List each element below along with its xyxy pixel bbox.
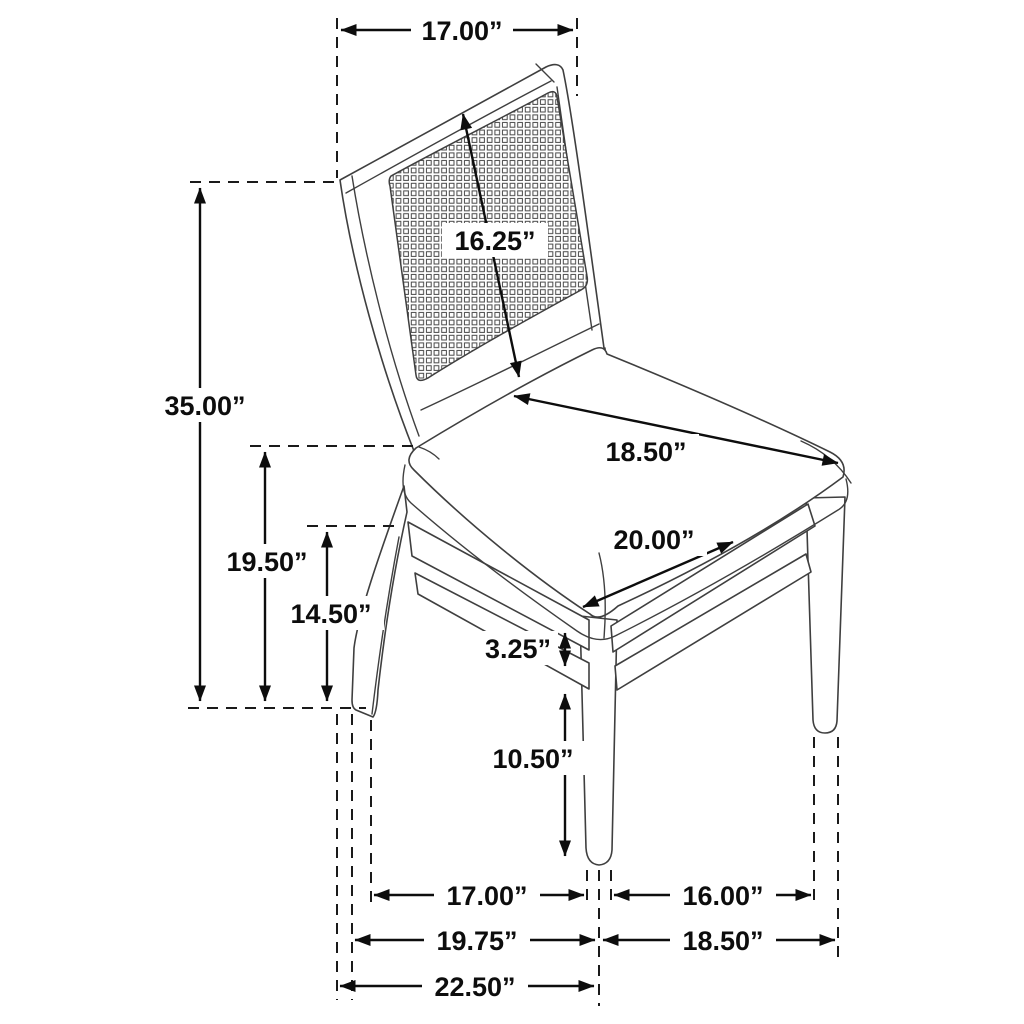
dim-label-overall-height: 35.00” bbox=[152, 388, 258, 422]
dim-label-text: 35.00” bbox=[164, 391, 245, 421]
chair-front-leg bbox=[580, 616, 617, 865]
diagram-svg: 17.00” 35.00” 16.25” 19.50” 14.50” 18.50… bbox=[0, 0, 1024, 1024]
dim-label-back-top-width: 17.00” bbox=[411, 13, 513, 47]
dim-label-back-panel-diagonal: 16.25” bbox=[442, 223, 548, 257]
dim-label-base-inner-width: 16.00” bbox=[670, 878, 776, 912]
dim-label-base-mid-depth: 19.75” bbox=[424, 923, 530, 957]
dim-label-text: 22.50” bbox=[434, 972, 515, 1002]
dim-label-text: 3.25” bbox=[485, 634, 551, 664]
dim-label-text: 19.50” bbox=[226, 547, 307, 577]
dim-label-base-inner-depth: 17.00” bbox=[434, 878, 540, 912]
dim-label-text: 18.50” bbox=[605, 437, 686, 467]
dim-label-text: 16.00” bbox=[682, 881, 763, 911]
dim-label-base-overall-depth: 22.50” bbox=[422, 969, 528, 1003]
dim-label-text: 10.50” bbox=[492, 744, 573, 774]
dim-label-seat-frame-height: 14.50” bbox=[278, 596, 384, 630]
dim-label-leg-lower-height: 10.50” bbox=[480, 741, 586, 775]
dim-label-text: 18.50” bbox=[682, 926, 763, 956]
chair-rear-right-leg bbox=[806, 497, 845, 733]
dim-label-apron-stretcher-gap: 3.25” bbox=[478, 631, 558, 665]
dim-label-text: 17.00” bbox=[446, 881, 527, 911]
dim-label-base-overall-width: 18.50” bbox=[670, 923, 776, 957]
dim-label-text: 19.75” bbox=[436, 926, 517, 956]
chair-dimension-diagram: 17.00” 35.00” 16.25” 19.50” 14.50” 18.50… bbox=[0, 0, 1024, 1024]
dim-label-seat-width: 18.50” bbox=[593, 434, 699, 468]
dim-label-seat-depth: 20.00” bbox=[601, 522, 707, 556]
dim-label-text: 14.50” bbox=[290, 599, 371, 629]
dim-label-seat-top-height: 19.50” bbox=[214, 544, 320, 578]
dim-label-text: 20.00” bbox=[613, 525, 694, 555]
dim-label-text: 17.00” bbox=[421, 16, 502, 46]
dim-label-text: 16.25” bbox=[454, 226, 535, 256]
